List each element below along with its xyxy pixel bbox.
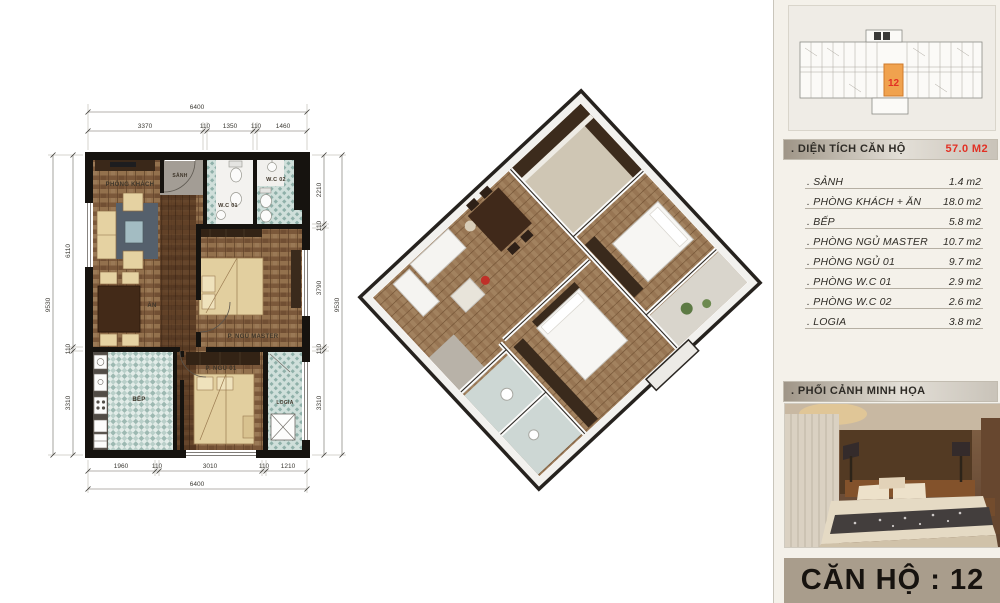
room-name: . PHÒNG KHÁCH + ĂN: [807, 196, 921, 208]
room-name: . PHÒNG NGỦ MASTER: [807, 236, 928, 248]
chair: [122, 334, 139, 346]
chair: [100, 334, 117, 346]
sink-icon: [217, 211, 226, 220]
stove-icon: [94, 397, 107, 414]
dim: 110: [251, 123, 262, 130]
dim-left-overall: 9530: [45, 297, 52, 312]
dim: 110: [316, 343, 323, 354]
label-bedroom1: P. NGỦ 01: [206, 365, 237, 372]
elevator-core: [874, 32, 881, 40]
label-hall: SẢNH: [172, 172, 187, 179]
toilet-icon: [231, 168, 242, 182]
dim-bottom-total: 6400: [190, 481, 205, 488]
dim-top-total: 6400: [190, 104, 205, 111]
dim: 1210: [281, 463, 296, 470]
wardrobe: [186, 352, 260, 365]
dim: 6110: [65, 244, 72, 258]
photo-header-label: . PHỐI CẢNH MINH HỌA: [791, 385, 926, 397]
area-header-label: . DIỆN TÍCH CĂN HỘ: [791, 143, 906, 155]
dim: 3310: [65, 395, 72, 410]
pillow: [217, 377, 233, 390]
dim: 3310: [316, 395, 323, 410]
room-name: . SẢNH: [807, 176, 843, 188]
pillow: [197, 377, 213, 390]
info-panel: 12 . DIỆN TÍCH CĂN HỘ 57.0 M2 . SẢNH 1.4…: [773, 0, 1000, 603]
dim: 110: [316, 220, 323, 231]
nightstand: [243, 416, 254, 438]
room-area: 1.4 m2: [949, 176, 981, 188]
dresser: [291, 250, 301, 308]
building-keyplan-svg: 12: [789, 6, 993, 128]
toilet-tank: [229, 161, 242, 167]
pillow: [202, 276, 215, 292]
total-area-value: 57.0 M2: [945, 140, 988, 159]
room-area: 10.7 m2: [943, 236, 981, 248]
chair: [122, 272, 139, 284]
brochure-page: 6400 3370 110 1350 110 1460 1960 110 301…: [0, 0, 1000, 603]
pillow: [202, 294, 215, 309]
dim: 3790: [316, 280, 323, 295]
unit-title-band: CĂN HỘ : 12: [784, 558, 1000, 603]
room-area: 3.8 m2: [949, 316, 981, 328]
list-item: . SẢNH 1.4 m2: [805, 169, 983, 189]
armchair: [123, 193, 143, 211]
label-master: P. NGỦ MASTER: [228, 333, 279, 340]
dim: 110: [65, 343, 72, 354]
room-area-list: . SẢNH 1.4 m2 . PHÒNG KHÁCH + ĂN 18.0 m2…: [805, 169, 983, 329]
dining-table: [98, 286, 140, 332]
dim: 1460: [276, 123, 291, 130]
room-area: 5.8 m2: [949, 216, 981, 228]
dim: 1960: [114, 463, 129, 470]
area-header-bar: . DIỆN TÍCH CĂN HỘ 57.0 M2: [783, 139, 998, 160]
sink-unit: [94, 374, 107, 391]
bedroom-photo: [784, 403, 1000, 548]
room-name: . PHÒNG W.C 01: [807, 276, 892, 288]
list-item: . PHÒNG KHÁCH + ĂN 18.0 m2: [805, 189, 983, 209]
floorplan-and-3d-svg: 6400 3370 110 1350 110 1460 1960 110 301…: [0, 0, 780, 603]
room-name: . BẾP: [807, 216, 835, 228]
dim: 3010: [203, 463, 218, 470]
list-item: . PHÒNG NGỦ MASTER 10.7 m2: [805, 229, 983, 249]
chair: [100, 272, 117, 284]
label-wc2: W.C 02: [266, 177, 286, 183]
room-area: 2.6 m2: [949, 296, 981, 308]
room-name: . LOGIA: [807, 316, 846, 328]
tv: [110, 162, 136, 167]
room-name: . PHÒNG W.C 02: [807, 296, 892, 308]
bidet-icon: [261, 210, 272, 222]
label-logia: LOGIA: [276, 400, 293, 406]
photo-header-bar: . PHỐI CẢNH MINH HỌA: [783, 381, 998, 402]
building-keyplan-box: 12: [788, 5, 996, 131]
toilet-icon: [261, 195, 272, 208]
room-name: . PHÒNG NGỦ 01: [807, 256, 895, 268]
room-area: 18.0 m2: [943, 196, 981, 208]
dim: 110: [200, 123, 211, 130]
dim: 110: [259, 463, 270, 470]
dim: 3370: [138, 123, 153, 130]
room-area: 2.9 m2: [949, 276, 981, 288]
list-item: . PHÒNG W.C 02 2.6 m2: [805, 289, 983, 309]
unit-title: CĂN HỘ : 12: [801, 564, 984, 596]
bedroom-photo-svg: [785, 404, 1000, 547]
label-kitchen: BẾP: [132, 396, 145, 403]
floor-plan: 6400 3370 110 1350 110 1460 1960 110 301…: [45, 104, 346, 493]
dim-right-overall: 9530: [334, 297, 341, 312]
dim: 110: [152, 463, 163, 470]
warm-tone-overlay: [785, 404, 1000, 547]
highlighted-unit-number: 12: [888, 78, 900, 89]
list-item: . PHÒNG W.C 01 2.9 m2: [805, 269, 983, 289]
elevator-core: [883, 32, 890, 40]
washer-icon: [94, 355, 107, 369]
label-living: PHÒNG KHÁCH: [106, 180, 155, 188]
list-item: . PHÒNG NGỦ 01 9.7 m2: [805, 249, 983, 269]
wc1-area: [207, 160, 253, 226]
coffee-table: [125, 221, 143, 243]
list-item: . LOGIA 3.8 m2: [805, 309, 983, 329]
dim: 1350: [223, 123, 238, 130]
3d-view: [360, 91, 765, 494]
label-dining: ĂN: [147, 302, 156, 309]
label-wc1: W.C 01: [218, 203, 238, 209]
dim: 2210: [316, 182, 323, 197]
sink-icon: [268, 163, 277, 172]
armchair: [123, 251, 143, 269]
room-area: 9.7 m2: [949, 256, 981, 268]
list-item: . BẾP 5.8 m2: [805, 209, 983, 229]
